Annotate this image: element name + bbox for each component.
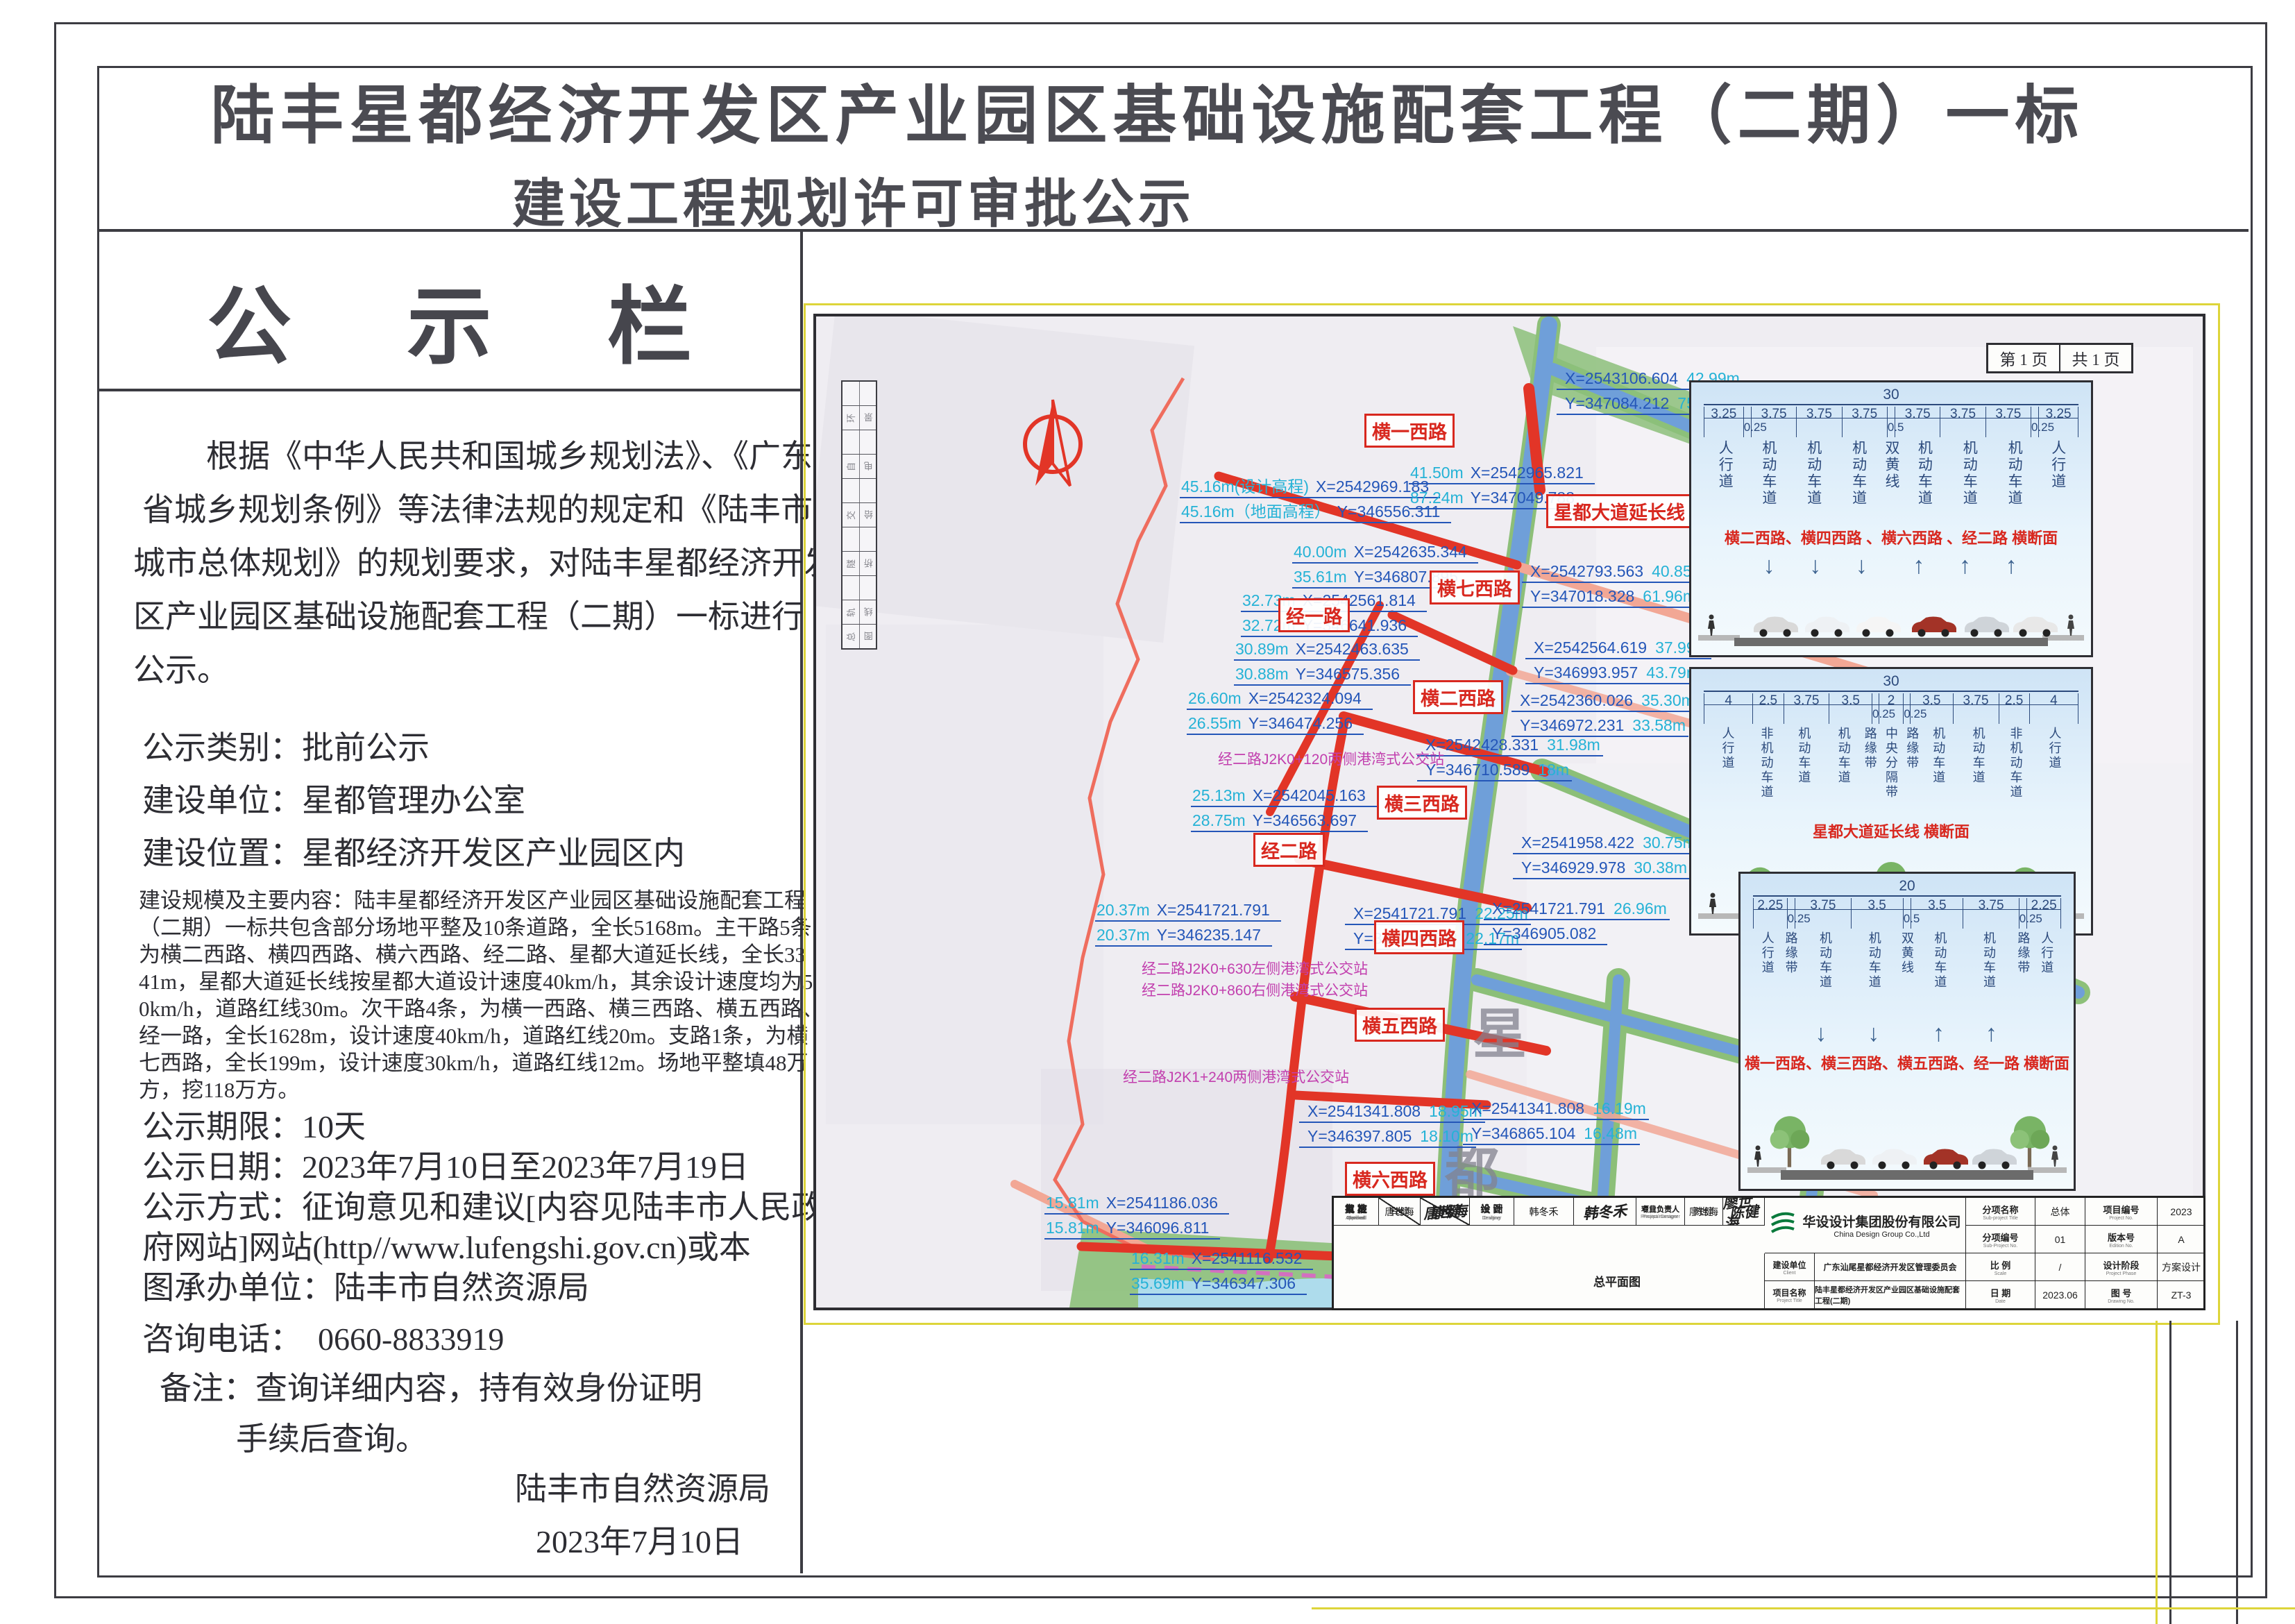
page-number-box: 第 1 页 共 1 页 [1986, 343, 2133, 373]
notice-line: 为横二西路、横四西路、横六西路、经二路、星都大道延长线，全长33 [139, 942, 806, 967]
page-subtitle: 建设工程规划许可审批公示 [0, 161, 1707, 237]
project-value: 陆丰星都经济开发区产业园区基础设施配套工程(二期) [1815, 1281, 1966, 1308]
discipline-row: 环 景 [842, 406, 876, 430]
notice-line: 咨询电话： 0660-8833919 [142, 1321, 504, 1358]
coordinate-callout: X=2541958.42230.75m Y=346929.97830.38m [1513, 834, 1699, 883]
section-width-dims: 42.53.753.50.2520.253.53.752.54 [1704, 693, 2078, 724]
bus-stop-annotation: 经二路J2K0+630左侧港湾式公交站 [1142, 958, 1368, 979]
cross-section-panel-secondary-roads: 20 2.250.253.753.50.53.53.750.252.25 人行道… [1738, 872, 2076, 1191]
notice-line: 城市总体规划》的规划要求，对陆丰星都经济开发 [133, 545, 836, 582]
notice-line: 建设位置：星都经济开发区产业园区内 [142, 836, 685, 872]
notice-line: 公示。 [133, 652, 229, 689]
title-block-drawing-name: 总平面图 [1470, 1253, 1765, 1308]
notice-board-title: 公 示 栏 [97, 258, 802, 381]
road-label: 经一路 [1278, 598, 1350, 632]
section-illustration [1698, 599, 2084, 651]
notice-line: 41m，星都大道延长线按星都大道设计速度40km/h，其余设计速度均为5 [139, 970, 813, 995]
title-block-sign-table: 批 准Ratified 审 定Approved [1334, 1198, 1470, 1308]
bus-stop-annotation: 经二路J2K1+240两侧港湾式公交站 [1123, 1066, 1349, 1087]
notice-line: 备注：查询详细内容，持有效身份证明 [160, 1371, 702, 1407]
road-label: 经二路 [1253, 833, 1325, 867]
discipline-row: 总 图 [842, 625, 876, 648]
notice-line: 府网站]网站(http//www.lufengshi.gov.cn)或本 [142, 1230, 751, 1267]
discipline-row [842, 430, 876, 455]
road-label: 横一西路 [1364, 414, 1455, 448]
discipline-row [842, 576, 876, 600]
coordinate-callout: X=2541341.80818.95m Y=346397.80518.10m [1299, 1102, 1485, 1152]
notice-line: （二期）一标共包含部分场地平整及10条道路，全长5168m。主干路5条， [139, 915, 833, 940]
notice-line: 公示类别：批前公示 [142, 730, 430, 767]
notice-line: 七西路，全长199m，设计速度30km/h，道路红线12m。场地平整填48万 [139, 1051, 808, 1076]
notice-line: 手续后查询。 [236, 1421, 427, 1458]
coordinate-callout: 16.31mX=2541116.532 35.69mY=346347.306 [1130, 1249, 1313, 1299]
artifact-black-vertical [2236, 1321, 2238, 1624]
section-total-width: 30 [1704, 673, 2078, 692]
north-arrow-icon [1015, 394, 1091, 505]
notice-header-underline [97, 389, 802, 391]
road-label: 横七西路 [1430, 570, 1520, 604]
section-direction-arrows: ↓↓↓↑↑↑ [1704, 552, 2078, 580]
title-separator [97, 229, 2249, 232]
section-lane-labels: 人行道非机动车道机动车道机动车道路缘带中央分隔带路缘带机动车道机动车道非机动车道… [1704, 727, 2078, 815]
notice-line: 图承办单位：陆丰市自然资源局 [142, 1270, 589, 1307]
artifact-black-vertical [2169, 1321, 2171, 1624]
notice-line: 公示日期：2023年7月10日至2023年7月19日 [142, 1149, 749, 1186]
section-total-width: 20 [1753, 878, 2061, 897]
section-caption: 星都大道延长线 横断面 [1691, 820, 2091, 842]
notice-line: 建设单位：星都管理办公室 [142, 783, 525, 820]
scanned-planning-notice: { "page": { "title_line1": "陆丰星都经济开发区产业园… [0, 0, 2295, 1624]
artifact-yellow-vertical [2156, 1321, 2158, 1624]
coordinate-callout: X=2542793.56340.85m Y=347018.32861.96m [1522, 562, 1708, 612]
title-block: 批 准Ratified 审 定Approved [1332, 1196, 2205, 1310]
page-number-total: 共 1 页 [2060, 345, 2131, 371]
notice-line: 根据《中华人民共和国城乡规划法》、《广东 [142, 439, 813, 475]
discipline-row [842, 382, 876, 406]
notice-line: 经一路，全长1628m，设计速度40km/h，道路红线20m。支路1条，为横 [139, 1024, 808, 1049]
road-label: 横六西路 [1345, 1162, 1435, 1196]
coordinate-callout: 30.89mX=2542463.635 30.88mY=346575.356 [1234, 640, 1420, 690]
section-caption: 横二西路、横四西路 、横六西路 、经二路 横断面 [1691, 526, 2091, 548]
notice-line: 建设规模及主要内容：陆丰星都经济开发区产业园区基础设施配套工程 [139, 888, 806, 913]
road-label: 横五西路 [1355, 1008, 1445, 1042]
client-value: 广东汕尾星都经济开发区管理委员会 [1815, 1253, 1966, 1281]
project-label: 项目名称 Project Title [1765, 1281, 1815, 1308]
artifact-yellow-horizontal [1312, 1607, 2295, 1609]
notice-line: 方，挖118万方。 [139, 1078, 299, 1103]
title-block-fields: 分项名称Sub-project Title 总体 项目编号Project No.… [1966, 1198, 2205, 1308]
section-direction-arrows: ↓↓↑↑ [1753, 1020, 2061, 1047]
notice-line: 陆丰市自然资源局 [515, 1471, 770, 1508]
notice-line: 2023年7月10日 [536, 1524, 743, 1561]
coordinate-callout: 25.13mX=2542045.163 28.75mY=346563.697 [1191, 786, 1377, 836]
coordinate-callout: 15.81mX=2541186.036 15.81mY=346096.811 [1044, 1194, 1229, 1244]
notice-line: 公示方式：征询意见和建议[内容见陆丰市人民政 [142, 1190, 823, 1226]
coordinate-callout: X=2542564.61937.99m Y=346993.95743.79m [1525, 638, 1711, 688]
notice-line: 公示期限：10天 [142, 1109, 366, 1146]
notice-line: 区产业园区基础设施配套工程（二期）一标进行 [133, 599, 804, 636]
section-width-dims: 3.250.253.753.753.750.53.753.753.750.253… [1704, 407, 2078, 437]
coordinate-callout: 26.60mX=2542324.094 26.55mY=346474.256 [1187, 689, 1373, 739]
discipline-row: 轨 线 [842, 600, 876, 625]
section-caption: 横一西路、横三西路、横五西路、经一路 横断面 [1741, 1051, 2074, 1074]
company-logo-icon [1769, 1211, 1797, 1240]
coordinate-callout: X=2542428.33131.98m Y=346710.58918m [1417, 736, 1603, 786]
discipline-row: 隧 桥 [842, 552, 876, 576]
section-lane-labels: 人行道路缘带机动车道机动车道双黄线机动车道机动车道路缘带人行道 [1753, 931, 2061, 1016]
page-title: 陆丰星都经济开发区产业园区基础设施配套工程（二期）一标 [0, 64, 2295, 156]
road-label: 横三西路 [1377, 786, 1467, 820]
discipline-row: 交 给 [842, 503, 876, 527]
map-watermark-char: 星 [1473, 991, 1527, 1069]
discipline-row: 自 电 [842, 455, 876, 479]
bus-stop-annotation: 经二路J2K0+860右侧港湾式公交站 [1142, 979, 1368, 1000]
page-number-current: 第 1 页 [1988, 345, 2060, 371]
road-label: 星都大道延长线 [1546, 494, 1693, 528]
cross-section-panel-trunk-roads: 30 3.250.253.753.753.750.53.753.753.750.… [1689, 380, 2093, 657]
discipline-row [842, 527, 876, 552]
section-width-dims: 2.250.253.753.50.53.53.750.252.25 [1753, 898, 2061, 929]
section-illustration [1747, 1092, 2067, 1185]
road-label: 横二西路 [1413, 680, 1503, 714]
coordinate-callout: X=2541721.79126.96m Y=346905.082 [1484, 899, 1670, 949]
client-label: 建设单位 Client [1765, 1253, 1815, 1281]
section-total-width: 30 [1704, 387, 2078, 405]
notice-line: 省城乡规划条例》等法律法规的规定和《陆丰市 [142, 492, 813, 529]
discipline-row [842, 479, 876, 503]
coordinate-callout: 20.37mX=2541721.791 20.37mY=346235.147 [1095, 901, 1281, 951]
coordinate-callout: X=2542360.02635.30m Y=346972.23133.58m [1511, 691, 1697, 741]
title-block-company: 华设设计集团股份有限公司 China Design Group Co.,Ltd [1765, 1198, 1966, 1253]
section-lane-labels: 人行道机动车道机动车道机动车道双黄线机动车道机动车道机动车道人行道 [1704, 440, 2078, 522]
title-block-designer-rows: 设 计Designer 韩冬禾 韩冬禾 项目负责人Project manager… [1470, 1198, 1765, 1253]
coordinate-callout: X=2541341.80816.19m Y=346865.10416.48m [1463, 1099, 1649, 1149]
notice-line: 0km/h，道路红线30m。次干路4条，为横一西路、横三西路、横五西路、 [139, 997, 824, 1022]
discipline-strip: 环 景 自 电 交 给 隧 桥 [841, 380, 877, 650]
road-label: 横四西路 [1374, 920, 1464, 954]
bus-stop-annotation: 经二路J2K0+120两侧港湾式公交站 [1218, 748, 1444, 769]
